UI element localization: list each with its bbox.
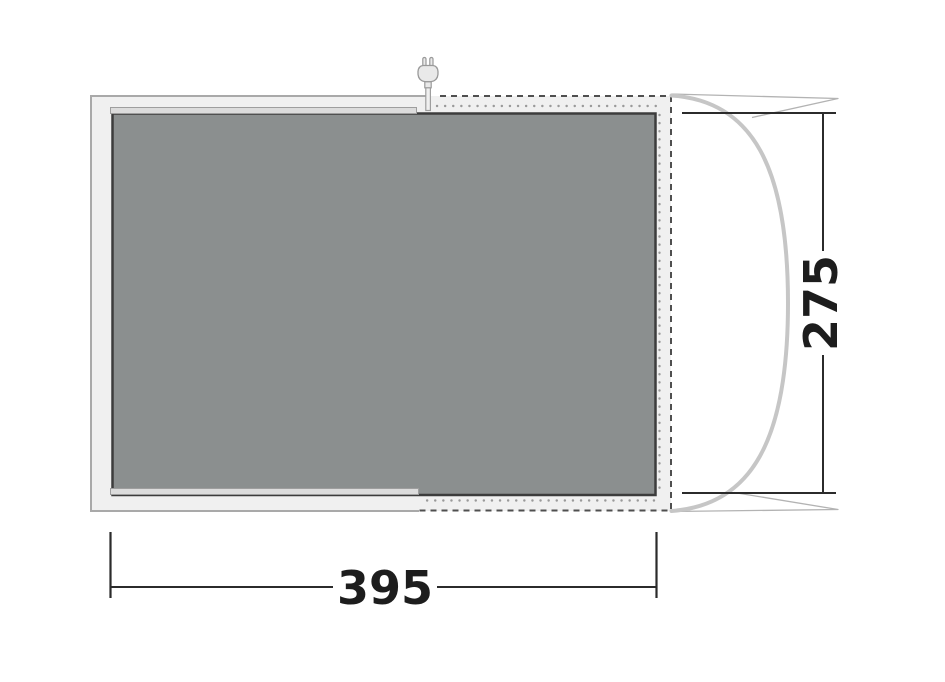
depth-dimension: 275 xyxy=(682,113,848,493)
width-dimension: 395 xyxy=(111,532,657,615)
plug-stem xyxy=(425,82,431,88)
width-dimension-label: 395 xyxy=(337,561,433,615)
groundsheet xyxy=(113,114,656,496)
floorplan-diagram: 395 275 xyxy=(0,0,945,682)
groundsheet-edge-strip-bottom xyxy=(111,489,419,495)
canopy-pole-curve xyxy=(672,96,789,512)
floorplan-canvas: 395 275 xyxy=(0,0,945,682)
power-cable xyxy=(426,87,431,111)
groundsheet-edge-strip-top xyxy=(111,108,417,114)
depth-dimension-label: 275 xyxy=(794,255,848,351)
plug-body xyxy=(418,66,438,82)
